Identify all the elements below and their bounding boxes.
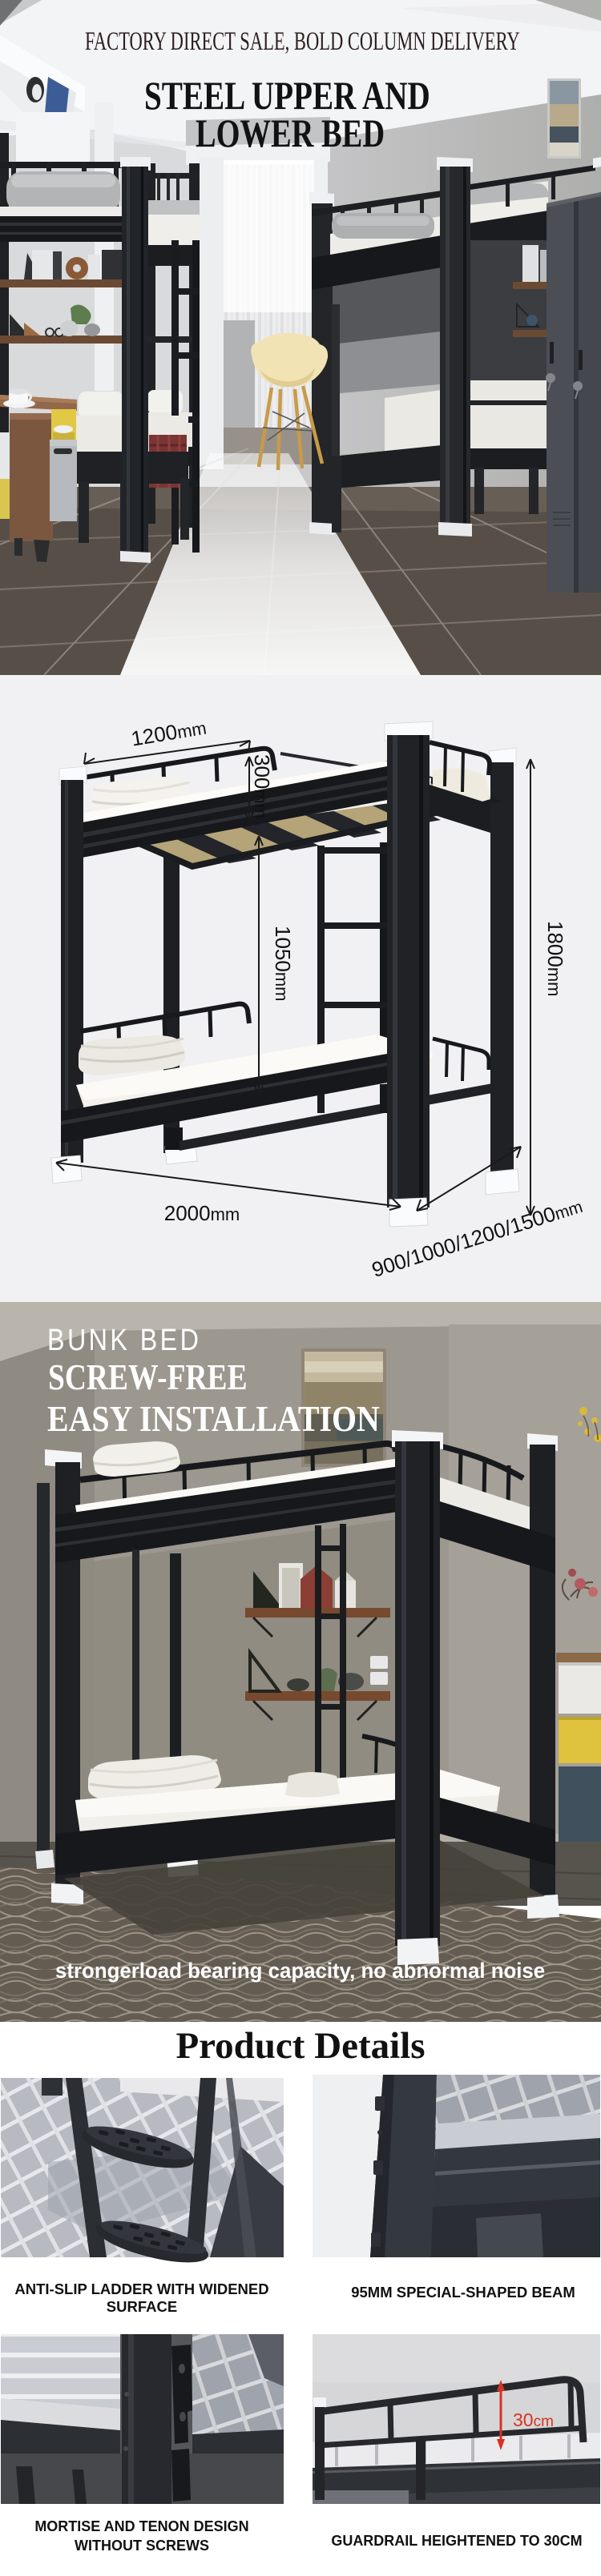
svg-text:2000mm: 2000mm xyxy=(164,1201,240,1225)
svg-text:300mm: 300mm xyxy=(250,754,274,818)
svg-text:1800mm: 1800mm xyxy=(543,921,567,997)
svg-text:1050mm: 1050mm xyxy=(271,926,295,1002)
